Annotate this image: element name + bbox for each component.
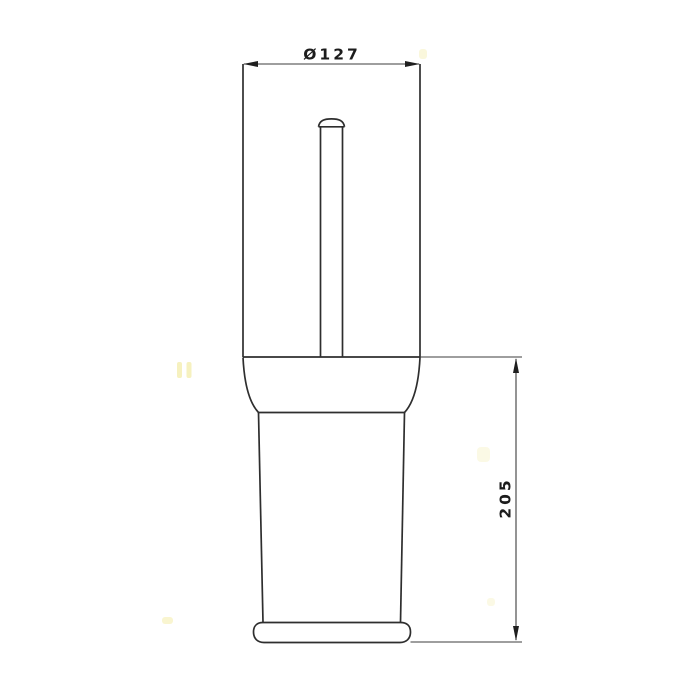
shoulder-right-curve	[405, 358, 421, 413]
height-label: 205	[497, 477, 515, 518]
watermark-speck	[162, 617, 173, 624]
watermark-specks	[162, 49, 495, 624]
watermark-speck	[187, 362, 192, 378]
shoulder-left-curve	[243, 358, 259, 413]
watermark-speck	[177, 362, 182, 378]
height-arrow-bottom-icon	[513, 626, 519, 641]
diameter-dimension: Ø127	[243, 46, 420, 68]
watermark-speck	[419, 49, 427, 59]
watermark-speck	[477, 447, 490, 462]
handle-cap-dome	[319, 119, 345, 127]
diameter-arrow-right-icon	[405, 61, 420, 67]
diameter-label: Ø127	[303, 46, 361, 64]
watermark-speck	[487, 598, 495, 606]
holder-outline	[243, 64, 420, 643]
technical-drawing-svg: Ø127 205	[0, 0, 700, 700]
diameter-arrow-left-icon	[243, 61, 258, 67]
drawing-canvas: Ø127 205	[0, 0, 700, 700]
height-arrow-top-icon	[513, 358, 519, 373]
base-outline	[254, 623, 411, 643]
body-left-edge	[259, 413, 264, 623]
height-dimension: 205	[411, 357, 523, 642]
body-right-edge	[401, 413, 405, 623]
